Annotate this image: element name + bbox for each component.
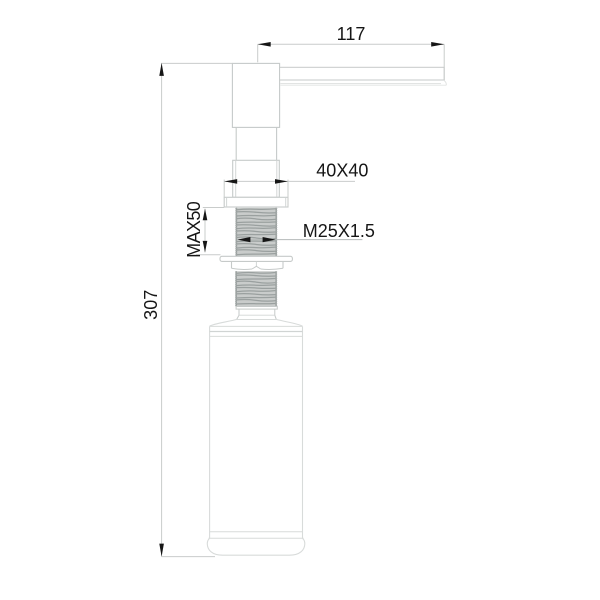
svg-text:40X40: 40X40 — [316, 161, 368, 181]
svg-text:M25X1.5: M25X1.5 — [303, 221, 375, 241]
svg-text:117: 117 — [337, 24, 366, 44]
svg-text:MAX50: MAX50 — [184, 201, 204, 258]
svg-text:307: 307 — [141, 290, 161, 320]
